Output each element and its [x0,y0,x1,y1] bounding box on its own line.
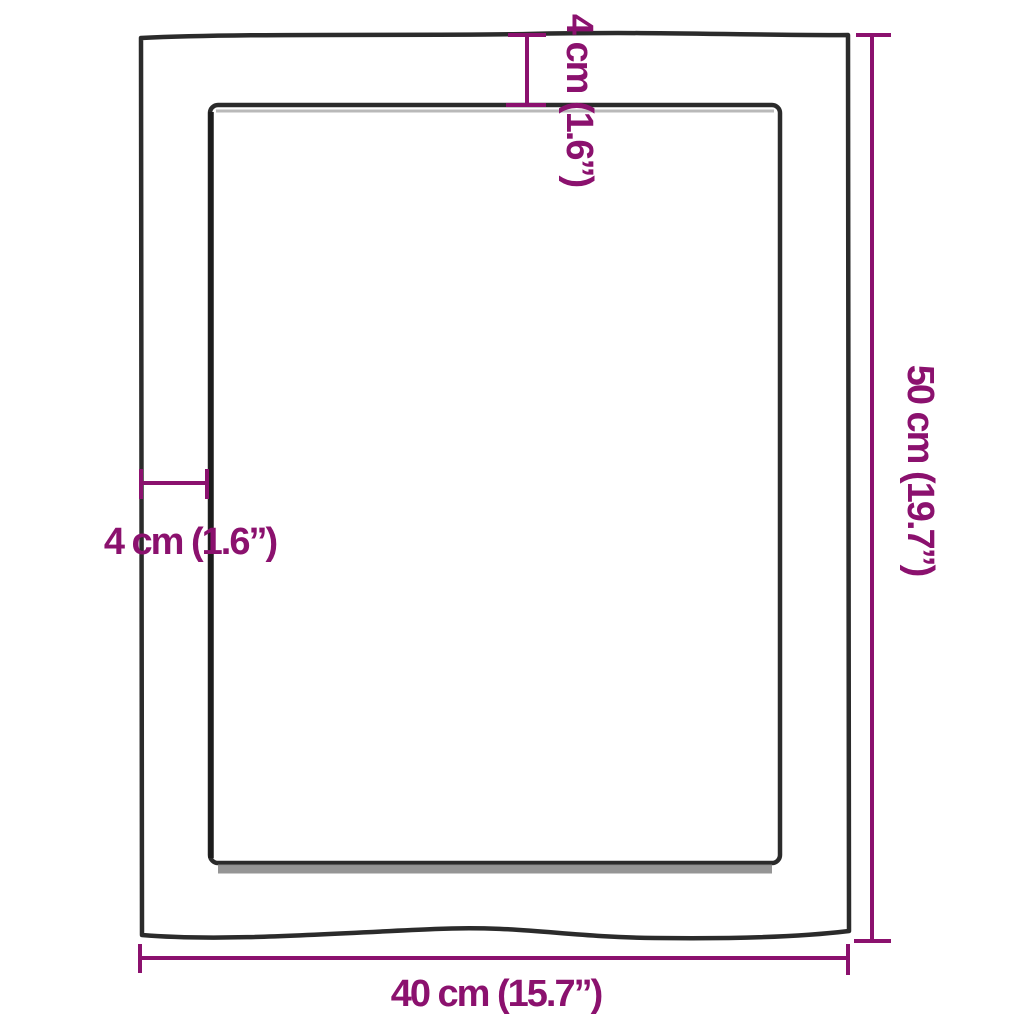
thickness-top-dimension-label: 4 cm (1.6”) [558,14,600,187]
diagram-canvas: 4 cm (1.6”) 4 cm (1.6”) 50 cm (19.7”) 40… [0,0,1024,1024]
height-dimension-line [854,35,891,941]
width-dimension-line [140,944,848,975]
dimension-diagram: 4 cm (1.6”) 4 cm (1.6”) 50 cm (19.7”) 40… [0,0,1024,1024]
panel-drawing [141,33,849,938]
thickness-side-dimension-label: 4 cm (1.6”) [104,521,277,563]
height-dimension-label: 50 cm (19.7”) [899,365,941,576]
width-dimension-label: 40 cm (15.7”) [391,973,602,1015]
panel-inner-recess [210,105,780,863]
